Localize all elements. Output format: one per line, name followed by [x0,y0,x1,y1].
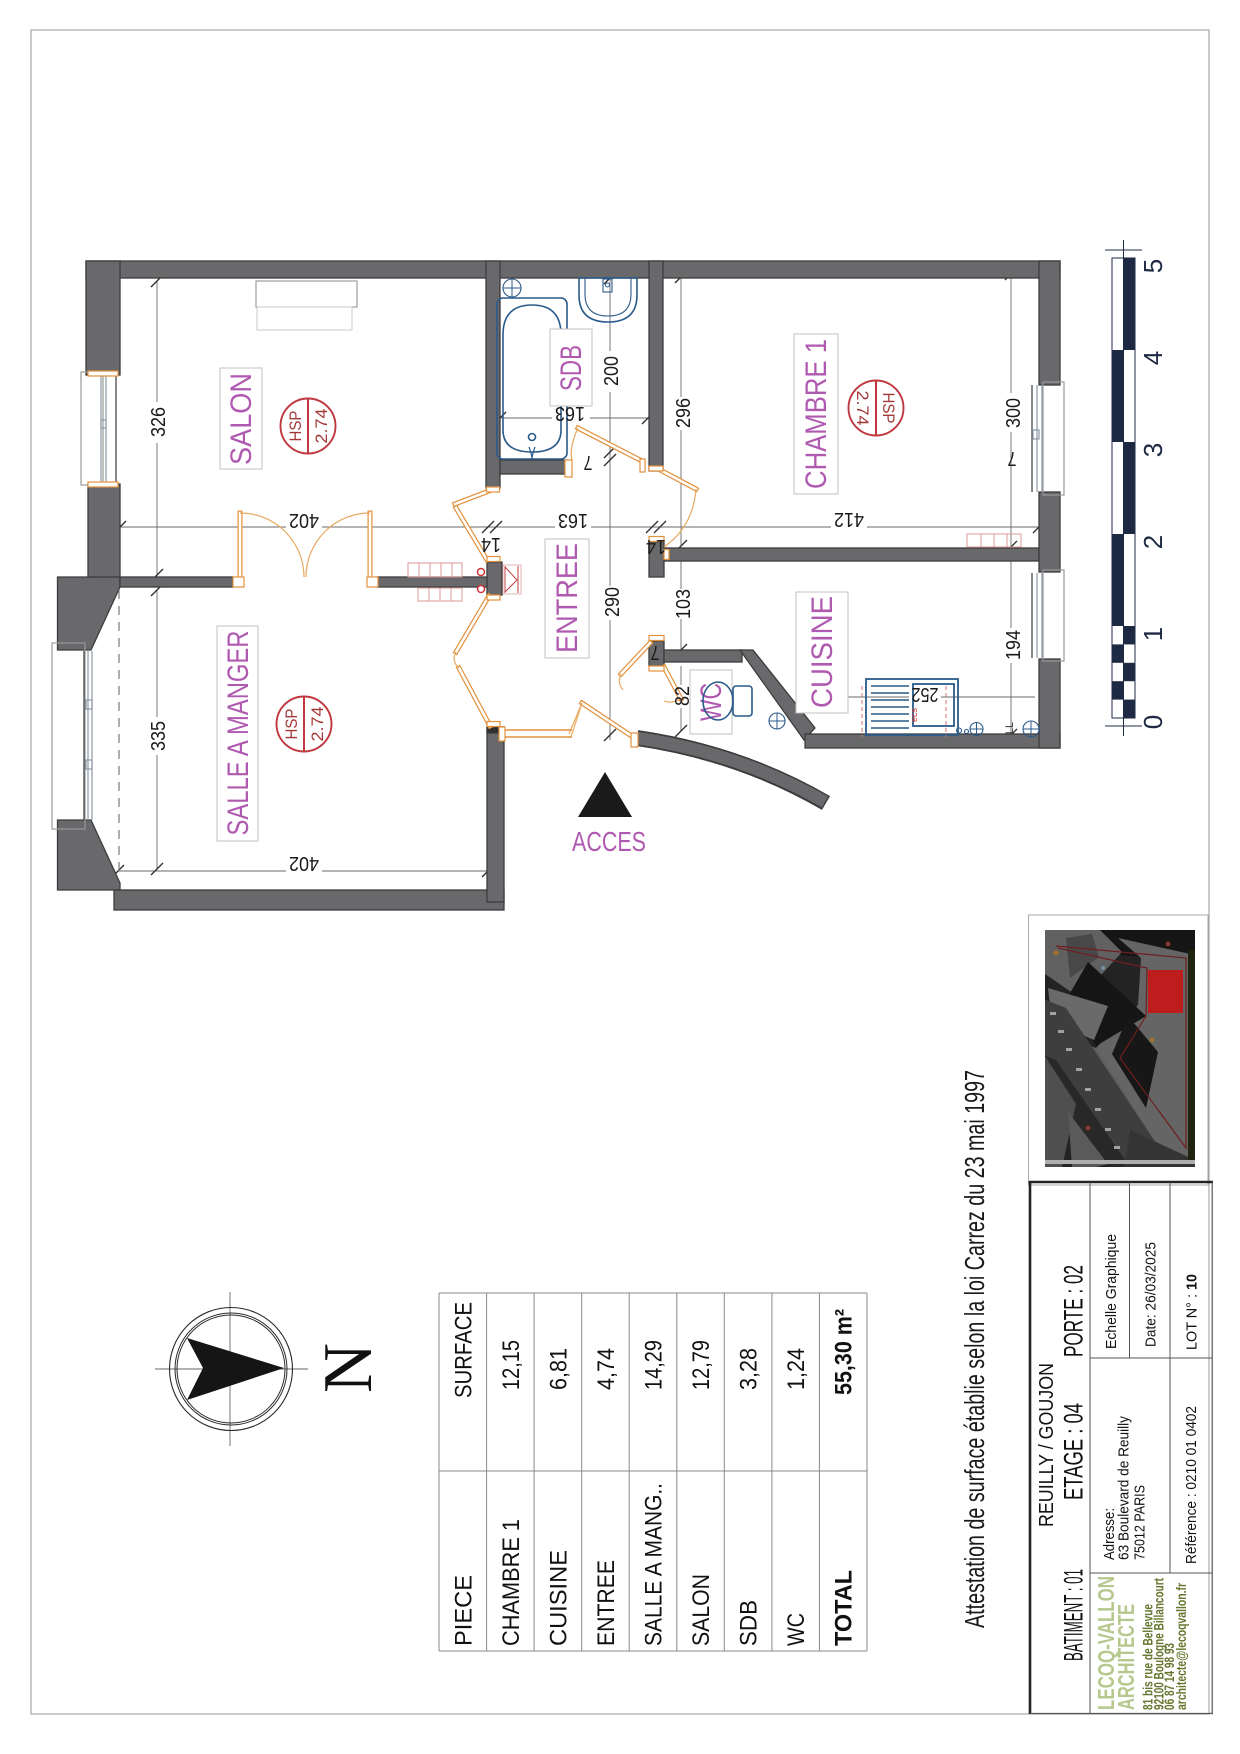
svg-text:326: 326 [148,407,170,437]
svg-text:LOT N° : 10: LOT N° : 10 [1184,1274,1201,1350]
svg-text:252: 252 [912,683,939,705]
svg-text:ENTREE: ENTREE [551,543,584,653]
svg-text:ACCES: ACCES [572,826,646,857]
svg-text:335: 335 [148,721,170,751]
svg-text:TOTAL: TOTAL [831,1570,858,1646]
svg-text:ENTREE: ENTREE [593,1560,620,1646]
svg-text:194: 194 [1003,630,1025,660]
svg-text:ETAGE : 04: ETAGE : 04 [1059,1403,1089,1500]
svg-text:BATIMENT : 01: BATIMENT : 01 [1059,1569,1089,1661]
svg-text:SDB: SDB [736,1600,763,1646]
svg-text:2.74: 2.74 [308,707,327,742]
svg-text:2: 2 [1138,535,1168,549]
svg-text:SALON: SALON [225,373,258,465]
svg-text:SDB: SDB [555,345,588,391]
svg-text:103: 103 [673,589,695,619]
svg-text:PIECE: PIECE [450,1575,477,1646]
svg-text:1: 1 [1138,627,1168,641]
svg-text:CUISINE: CUISINE [806,596,839,708]
svg-text:7: 7 [1008,447,1017,469]
svg-text:12,79: 12,79 [688,1340,715,1390]
svg-text:412: 412 [834,508,864,530]
svg-text:55,30 m²: 55,30 m² [831,1309,858,1395]
svg-text:4,74: 4,74 [593,1348,620,1390]
svg-text:PORTE : 02: PORTE : 02 [1059,1265,1089,1357]
svg-text:290: 290 [602,587,624,617]
svg-text:5: 5 [1138,259,1168,273]
svg-text:7: 7 [651,641,660,663]
svg-text:402: 402 [289,509,319,531]
svg-text:3,28: 3,28 [736,1348,763,1390]
svg-text:14: 14 [646,535,666,557]
svg-text:WC: WC [783,1613,810,1646]
svg-text:12,15: 12,15 [498,1340,525,1390]
svg-text:CUISINE: CUISINE [545,1550,572,1646]
svg-text:75012 PARIS: 75012 PARIS [1132,1485,1149,1560]
svg-text:300: 300 [1003,398,1025,428]
svg-text:REUILLY / GOUJON: REUILLY / GOUJON [1036,1363,1058,1527]
svg-text:2.74: 2.74 [312,409,331,444]
svg-text:14: 14 [481,533,501,555]
svg-text:296: 296 [673,398,695,428]
svg-text:SALON: SALON [688,1574,715,1646]
svg-text:HSP: HSP [282,709,301,740]
svg-text:Attestation de surface établie: Attestation de surface établie selon la … [959,1070,990,1628]
svg-text:6,81: 6,81 [545,1348,572,1390]
svg-text:14,29: 14,29 [641,1340,668,1390]
svg-text:Référence : 0210 01 0402: Référence : 0210 01 0402 [1183,1406,1200,1564]
svg-text:Date: 26/03/2025: Date: 26/03/2025 [1143,1242,1160,1347]
svg-text:SALLE A MANGER: SALLE A MANGER [222,631,255,836]
svg-text:4: 4 [1138,351,1168,365]
svg-text:CHAMBRE 1: CHAMBRE 1 [498,1519,525,1646]
svg-text:HSP: HSP [879,393,898,424]
svg-text:1,24: 1,24 [783,1348,810,1390]
svg-text:SALLE A MANG..: SALLE A MANG.. [641,1483,668,1646]
svg-text:200: 200 [601,356,623,386]
svg-text:2.74: 2.74 [853,391,872,426]
svg-text:63 Boulevard de Reuilly: 63 Boulevard de Reuilly [1116,1416,1133,1560]
svg-text:7: 7 [584,451,593,473]
svg-text:ecs: ecs [909,707,919,722]
svg-text:SURFACE: SURFACE [450,1302,477,1398]
svg-text:HSP: HSP [286,411,305,442]
svg-text:architecte@lecoqvallon.fr: architecte@lecoqvallon.fr [1174,1582,1189,1710]
svg-text:3: 3 [1138,443,1168,457]
svg-text:CHAMBRE 1: CHAMBRE 1 [800,339,833,489]
svg-text:163: 163 [558,509,588,531]
svg-text:LL: LL [1004,722,1016,734]
svg-text:N: N [310,1343,387,1393]
svg-text:ARCHITECTE: ARCHITECTE [1113,1604,1139,1710]
svg-text:0: 0 [1138,715,1168,729]
svg-text:Echelle Graphique: Echelle Graphique [1103,1234,1120,1349]
svg-text:402: 402 [289,852,319,874]
svg-text:WC: WC [695,683,728,721]
